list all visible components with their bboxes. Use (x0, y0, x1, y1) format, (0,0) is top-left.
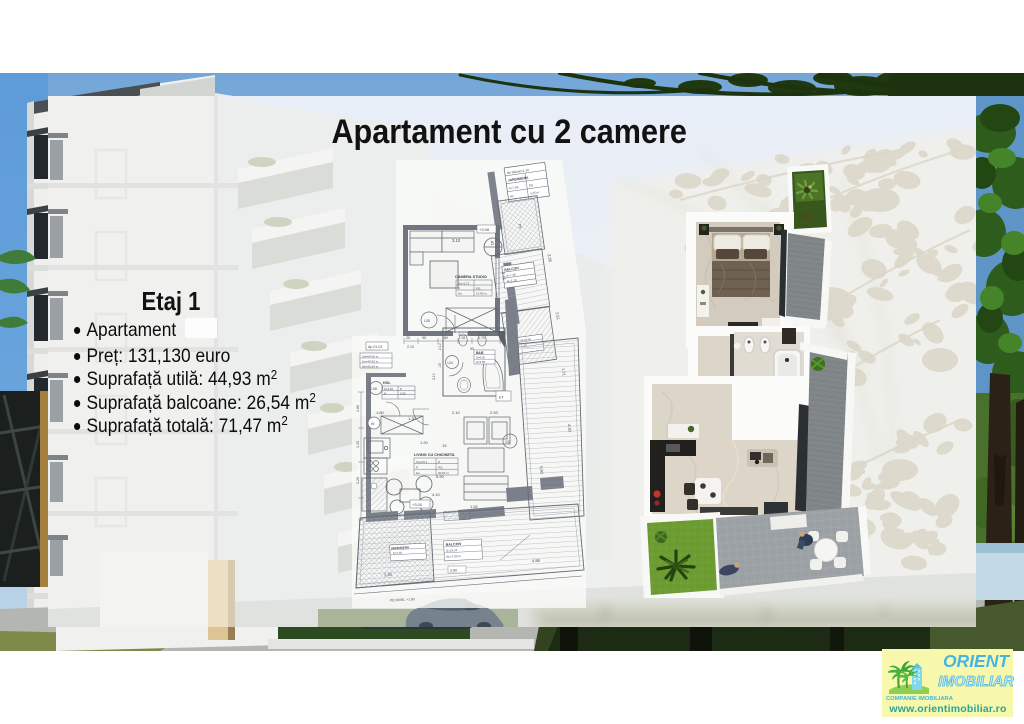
svg-text:5: 5 (491, 241, 494, 247)
svg-text:2.65: 2.65 (400, 391, 406, 395)
svg-text:H=2.55: H=2.55 (476, 360, 486, 364)
svg-text:15: 15 (461, 336, 465, 340)
svg-text:S=4.20: S=4.20 (476, 356, 485, 360)
svg-text:.15: .15 (441, 443, 447, 448)
svg-text:Su=23.1: Su=23.1 (416, 460, 428, 464)
svg-text:P.E.: P.E. (476, 287, 481, 291)
svg-text:Hu: Hu (458, 292, 462, 296)
svg-text:1.52: 1.52 (470, 504, 479, 509)
svg-text:12.80 m: 12.80 m (476, 292, 487, 296)
svg-text:Su=17.5: Su=17.5 (458, 282, 470, 286)
svg-text:.15: .15 (438, 363, 442, 368)
svg-text:2.10: 2.10 (452, 410, 461, 415)
svg-text:BALCON: BALCON (446, 542, 462, 547)
svg-text:1.20: 1.20 (356, 441, 360, 448)
svg-text:P: P (458, 287, 460, 291)
svg-text:W: W (371, 422, 375, 426)
svg-text:P.E.: P.E. (438, 465, 443, 469)
svg-text:80: 80 (444, 336, 448, 340)
svg-text:4.10: 4.10 (432, 492, 441, 497)
svg-text:1.80: 1.80 (376, 410, 385, 415)
svg-text:L05: L05 (424, 319, 430, 323)
svg-text:Sn=7.30 m: Sn=7.30 m (446, 554, 461, 559)
svg-text:5.90: 5.90 (436, 474, 445, 479)
svg-text:S=19.24: S=19.24 (446, 548, 458, 553)
svg-text:3.80: 3.80 (450, 569, 457, 573)
svg-text:2.40: 2.40 (384, 572, 393, 577)
svg-text:Ap 01.03: Ap 01.03 (368, 345, 382, 349)
svg-text:1.20: 1.20 (356, 477, 360, 484)
svg-text:+3.00: +3.00 (412, 502, 423, 507)
svg-text:4.88: 4.88 (532, 558, 541, 563)
svg-text:3.10: 3.10 (452, 238, 461, 243)
svg-text:HOL: HOL (383, 381, 391, 385)
svg-text:BAIE: BAIE (476, 351, 484, 355)
svg-text:1.20: 1.20 (420, 440, 429, 445)
svg-text:011: 011 (506, 440, 511, 444)
svg-text:Sd=64.00 m: Sd=64.00 m (362, 354, 379, 358)
svg-text:1.30: 1.30 (408, 416, 417, 421)
svg-text:1.80: 1.80 (356, 405, 360, 412)
svg-text:S=7.30: S=7.30 (393, 551, 403, 555)
svg-text:P: P (438, 460, 440, 464)
svg-text:Hu: Hu (416, 471, 420, 475)
svg-text:L04: L04 (448, 361, 454, 365)
svg-text:+3.08: +3.08 (479, 227, 490, 232)
svg-text:P.E.: P.E. (529, 183, 535, 188)
svg-text:1.70: 1.70 (478, 336, 485, 340)
svg-text:2.10: 2.10 (407, 345, 414, 349)
svg-text:P: P (416, 465, 418, 469)
svg-text:Sb=26.54 m: Sb=26.54 m (362, 364, 379, 368)
svg-text:LIVING CU CHICINETA: LIVING CU CHICINETA (414, 453, 455, 457)
svg-text:90: 90 (422, 336, 426, 340)
svg-text:2.10: 2.10 (438, 343, 442, 350)
svg-text:20: 20 (406, 336, 410, 340)
svg-text:Su=44.93 m: Su=44.93 m (362, 359, 379, 363)
svg-text:CAMERA STUDIO: CAMERA STUDIO (455, 275, 487, 279)
svg-text:5.90: 5.90 (539, 466, 545, 475)
svg-text:H: H (384, 391, 386, 395)
svg-text:3.10: 3.10 (432, 373, 436, 380)
svg-text:90: 90 (470, 347, 474, 351)
svg-text:2.53: 2.53 (490, 410, 499, 415)
svg-text:L08: L08 (372, 387, 378, 391)
svg-text:4.30: 4.30 (567, 424, 573, 433)
svg-text:ET: ET (499, 396, 505, 400)
